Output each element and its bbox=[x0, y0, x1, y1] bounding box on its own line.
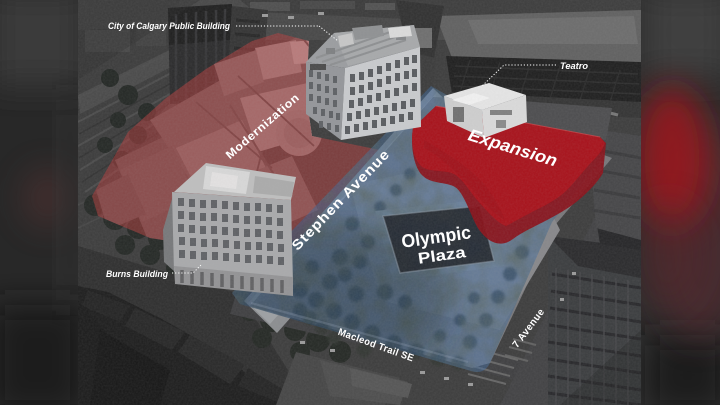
svg-text:Burns Building: Burns Building bbox=[106, 269, 168, 280]
svg-text:Teatro: Teatro bbox=[560, 61, 588, 72]
svg-text:City of Calgary Public Buildin: City of Calgary Public Building bbox=[108, 21, 230, 31]
